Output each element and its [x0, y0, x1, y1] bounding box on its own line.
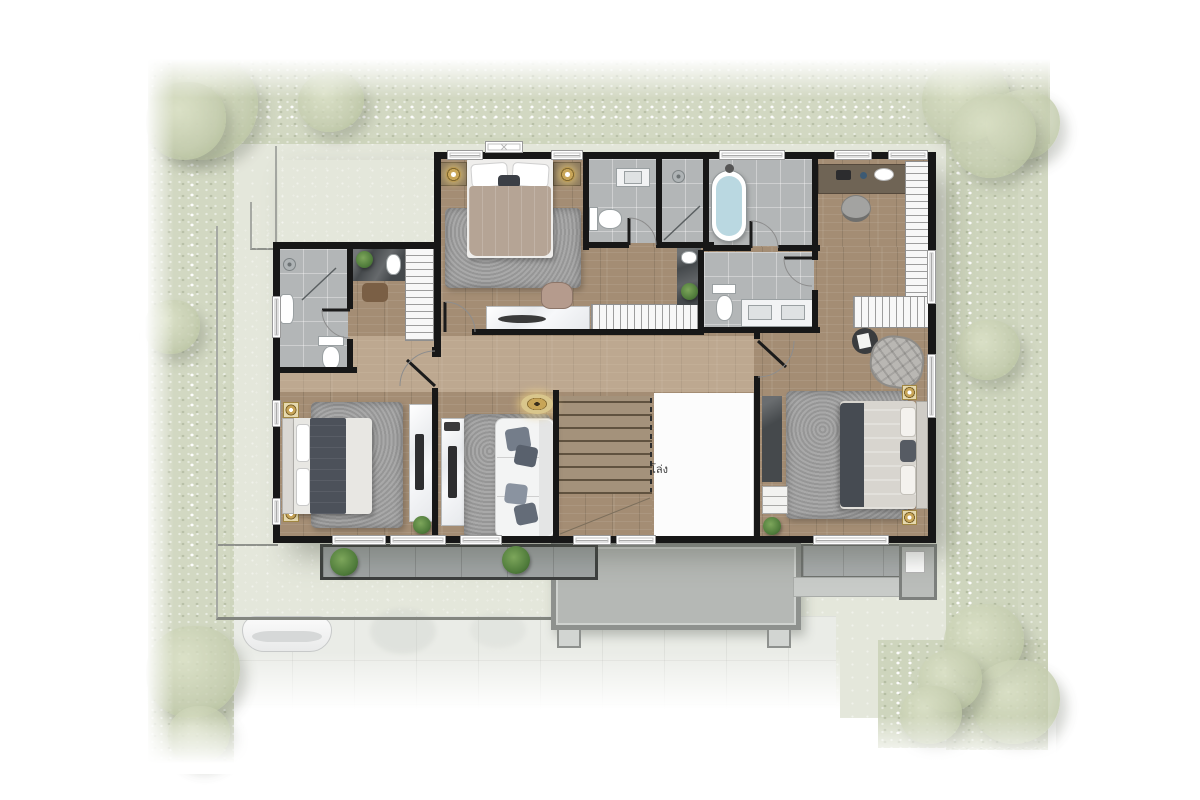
- window: [927, 250, 936, 304]
- wall: [585, 242, 629, 248]
- wall: [434, 152, 441, 357]
- window: [272, 400, 281, 427]
- wall: [273, 242, 441, 249]
- wardrobe: [405, 247, 434, 341]
- wall: [273, 367, 357, 373]
- potted-plant: [681, 283, 698, 300]
- toilet-tank: [589, 207, 598, 231]
- master-duvet: [469, 186, 551, 256]
- porch-column: [767, 628, 791, 648]
- tv-bedroom2: [415, 434, 424, 490]
- flower-band-left: [186, 150, 200, 570]
- fade-top: [140, 50, 1056, 98]
- wall: [553, 390, 559, 540]
- car: [242, 616, 332, 652]
- potted-plant: [356, 251, 373, 268]
- bedroom3-duvet-dark: [840, 403, 864, 507]
- window: [573, 535, 611, 545]
- table-lamp: [902, 385, 917, 400]
- porch-column: [557, 628, 581, 648]
- wall: [432, 347, 438, 357]
- office-chair: [841, 195, 871, 222]
- wardrobe-bottom: [853, 296, 931, 328]
- wall: [432, 388, 438, 540]
- stair-landing: [558, 494, 652, 538]
- tub-faucet: [725, 164, 734, 173]
- sofa-pillow: [504, 483, 528, 506]
- bedroom2-pillow: [296, 468, 310, 506]
- window: [719, 150, 785, 160]
- laptop: [836, 170, 851, 180]
- sink-basin: [748, 305, 772, 320]
- dresser-stool: [362, 283, 388, 302]
- wall: [754, 329, 760, 339]
- table-lamp: [902, 510, 917, 525]
- window: [272, 296, 281, 338]
- roof-slab-left: [216, 226, 278, 546]
- floor-lamp: [521, 394, 553, 414]
- washbasin: [681, 251, 697, 264]
- toilet-tank: [712, 284, 736, 294]
- side-table-paper: [857, 333, 872, 349]
- wall: [754, 376, 760, 540]
- balcony-plant: [502, 546, 530, 574]
- bedroom2-pillow: [296, 424, 310, 462]
- void-label: โล่ง: [650, 460, 668, 478]
- window: [551, 150, 583, 160]
- bedroom3-pillow: [900, 440, 916, 462]
- window: [272, 498, 281, 525]
- wardrobe-rail: [591, 304, 703, 331]
- bedroom2-headboard: [282, 418, 294, 514]
- sofa-pillow: [513, 444, 538, 468]
- media-item: [444, 422, 460, 431]
- window: [447, 150, 483, 160]
- drawer-unit: [762, 486, 788, 514]
- sink-basin: [624, 171, 642, 184]
- window: [834, 150, 872, 160]
- wall: [583, 155, 589, 250]
- wall: [812, 290, 818, 333]
- wall: [347, 339, 353, 371]
- toilet: [598, 209, 622, 229]
- driveway-fade: [228, 652, 840, 722]
- flower-band-right: [952, 118, 978, 648]
- window: [927, 354, 936, 418]
- wall: [472, 329, 704, 335]
- sofa-backrest: [539, 420, 553, 536]
- tv-console: [762, 396, 782, 482]
- wall: [703, 155, 709, 251]
- bedroom3-pillow: [900, 407, 916, 437]
- window: [616, 535, 656, 545]
- wall: [928, 152, 936, 543]
- table-lamp: [446, 167, 461, 182]
- desk-item: [860, 172, 867, 179]
- wall: [347, 247, 353, 309]
- potted-plant: [763, 517, 781, 535]
- window: [888, 150, 928, 160]
- balcony-left: [320, 544, 598, 580]
- wall: [656, 155, 662, 248]
- wall: [698, 250, 704, 333]
- shower-head: [672, 170, 685, 183]
- vanity-tray: [498, 315, 546, 323]
- tv-sitting: [448, 446, 457, 498]
- fade-bottom: [140, 716, 1056, 774]
- table-lamp: [560, 167, 575, 182]
- void-open-to-below: [654, 393, 754, 539]
- sink-basin: [781, 305, 805, 320]
- desk: [818, 164, 910, 194]
- vanity-stool: [541, 282, 573, 309]
- wall: [812, 155, 818, 260]
- table-lamp: [283, 402, 299, 418]
- washbasin: [386, 254, 401, 275]
- fade-left: [140, 50, 174, 774]
- washbasin: [279, 294, 294, 324]
- wall: [705, 245, 751, 251]
- shower-head: [283, 258, 296, 271]
- balcony-door: [390, 535, 446, 545]
- potted-plant: [413, 516, 431, 534]
- balcony-door: [460, 535, 502, 545]
- desk-tray: [874, 168, 894, 181]
- toilet: [716, 295, 733, 321]
- balcony-door: [813, 535, 889, 545]
- planter-step: [905, 551, 925, 573]
- bathtub-water: [716, 176, 742, 236]
- staircase: [558, 396, 652, 494]
- bedroom3-pillow: [900, 465, 916, 495]
- balcony-plant: [330, 548, 358, 576]
- skylight-vent: [485, 141, 523, 153]
- floor-plan-canvas: โล่ง: [0, 0, 1200, 800]
- bedroom2-duvet-dark: [310, 418, 346, 514]
- toilet-tank: [318, 336, 344, 346]
- balcony-door: [332, 535, 386, 545]
